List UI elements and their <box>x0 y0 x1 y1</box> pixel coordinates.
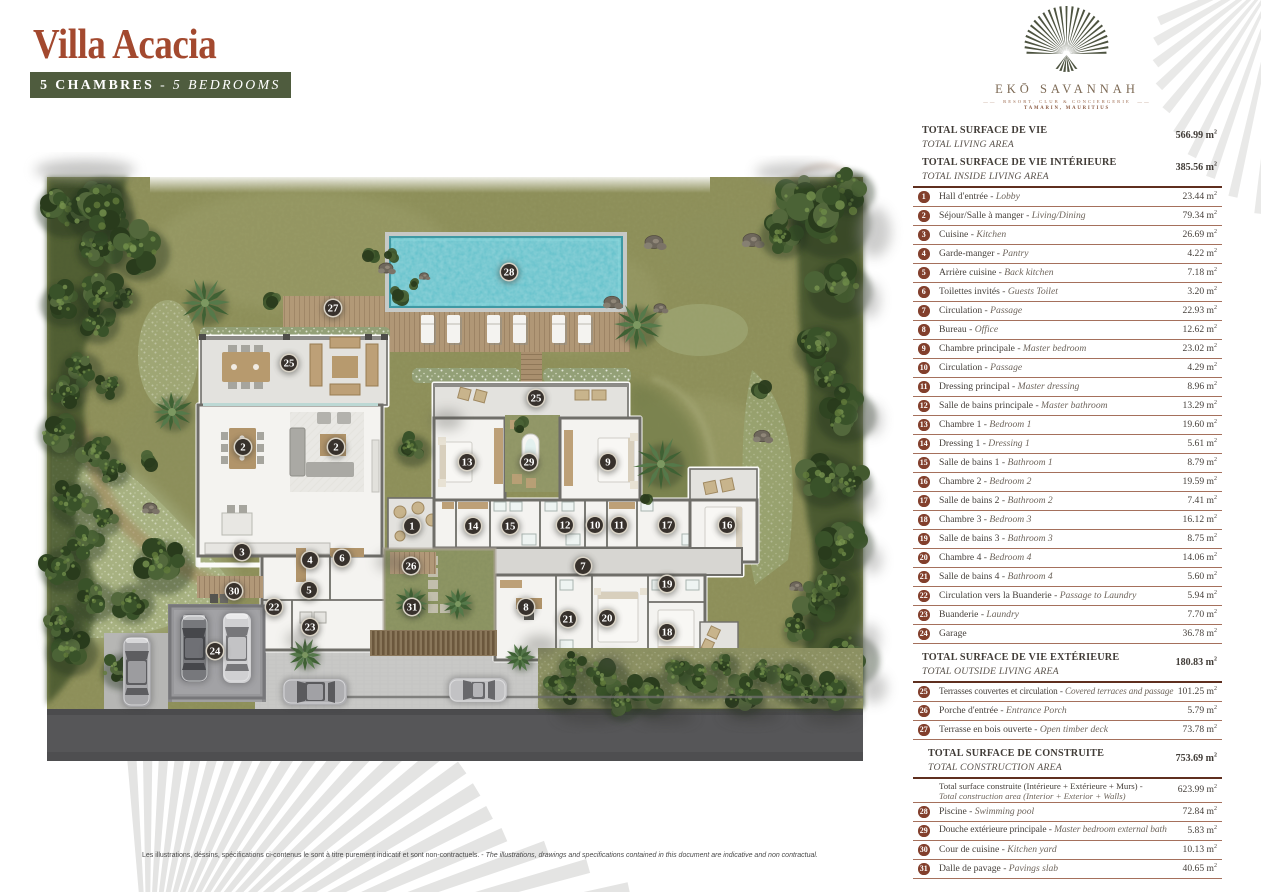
svg-text:29: 29 <box>524 457 535 469</box>
svg-text:12: 12 <box>560 520 571 532</box>
svg-text:1: 1 <box>409 521 414 533</box>
svg-text:18: 18 <box>662 627 673 639</box>
svg-text:25: 25 <box>284 358 295 370</box>
svg-text:13: 13 <box>462 457 473 469</box>
svg-text:23: 23 <box>305 622 316 634</box>
svg-text:16: 16 <box>722 520 733 532</box>
svg-text:26: 26 <box>406 561 417 573</box>
svg-text:17: 17 <box>662 520 673 532</box>
svg-text:9: 9 <box>605 457 611 469</box>
svg-text:27: 27 <box>328 303 339 315</box>
svg-text:2: 2 <box>333 442 338 454</box>
svg-text:19: 19 <box>662 579 673 591</box>
svg-text:24: 24 <box>210 646 221 658</box>
svg-text:14: 14 <box>468 521 479 533</box>
svg-text:2: 2 <box>240 442 245 454</box>
svg-text:21: 21 <box>563 614 574 626</box>
svg-text:30: 30 <box>229 586 240 598</box>
svg-text:28: 28 <box>504 267 515 279</box>
svg-text:5: 5 <box>306 585 311 597</box>
svg-text:4: 4 <box>307 555 313 567</box>
svg-text:31: 31 <box>407 602 418 614</box>
svg-text:22: 22 <box>269 602 280 614</box>
svg-text:7: 7 <box>580 561 586 573</box>
svg-text:6: 6 <box>339 553 345 565</box>
svg-text:8: 8 <box>523 602 529 614</box>
svg-text:10: 10 <box>590 520 601 532</box>
svg-text:11: 11 <box>614 520 624 532</box>
svg-text:3: 3 <box>239 547 245 559</box>
svg-text:15: 15 <box>505 521 516 533</box>
svg-text:20: 20 <box>602 613 613 625</box>
svg-text:25: 25 <box>531 393 542 405</box>
